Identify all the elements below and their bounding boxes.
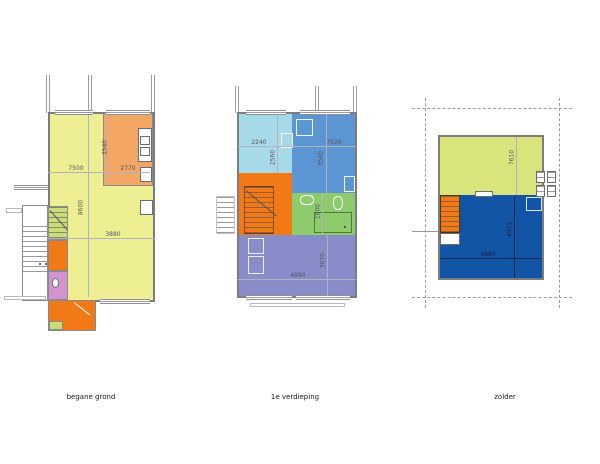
window xyxy=(246,295,292,300)
newel-post xyxy=(39,263,41,265)
stair-landing xyxy=(440,233,460,245)
roof-outline xyxy=(412,297,572,298)
dim-label: 2560 xyxy=(270,147,277,169)
dim-label: 2240 xyxy=(248,139,270,146)
wall-mullion xyxy=(315,86,319,113)
dim-line xyxy=(277,114,278,173)
neighbour-stair xyxy=(216,196,235,234)
wall-mullion xyxy=(88,75,92,113)
tick-line xyxy=(412,231,438,232)
wall-mullion xyxy=(235,86,239,113)
dim-line xyxy=(48,172,150,173)
dim-label: 3540 xyxy=(318,148,325,170)
kitchen-counter xyxy=(138,128,152,162)
dim-label: 4880 xyxy=(477,251,499,258)
dim-label: 7500 xyxy=(65,165,87,172)
dim-line xyxy=(88,115,89,297)
side-window xyxy=(14,185,48,190)
washbasin-icon xyxy=(300,195,314,205)
dim-line xyxy=(322,193,323,235)
staircase xyxy=(23,226,47,272)
dim-label: 4880 xyxy=(287,272,309,279)
dim-label: 1800 xyxy=(315,201,322,223)
floor-label-1e-verdieping: 1e verdieping xyxy=(260,393,330,401)
floor-label-zolder: zolder xyxy=(475,393,535,401)
window xyxy=(296,295,350,300)
roof-outline xyxy=(559,98,560,308)
closet xyxy=(296,119,313,136)
dim-line xyxy=(514,196,515,278)
attic-open-space xyxy=(440,137,542,195)
toilet-icon xyxy=(333,196,343,210)
duct-box xyxy=(547,185,556,197)
window xyxy=(246,110,286,115)
newel-post xyxy=(45,263,47,265)
wall-mullion xyxy=(151,75,155,113)
floor-label-begane-grond: begane grond xyxy=(56,393,126,401)
duct-box xyxy=(536,171,545,183)
roof-outline xyxy=(425,98,426,308)
kitchen-cabinet xyxy=(140,167,152,182)
radiator xyxy=(344,176,355,192)
dim-line xyxy=(516,137,517,195)
wall-mullion xyxy=(353,86,357,113)
duct-box xyxy=(547,171,556,183)
dim-label: 2770 xyxy=(117,165,139,172)
closet xyxy=(526,197,542,211)
kitchen-sink xyxy=(140,136,150,145)
window xyxy=(106,110,150,115)
dim-line xyxy=(238,279,356,280)
closet xyxy=(248,256,264,274)
dim-label: 8600 xyxy=(78,197,85,219)
closet xyxy=(248,238,264,254)
dim-label: 3880 xyxy=(102,231,124,238)
dim-label: 4951 xyxy=(507,219,514,241)
meter-cupboard xyxy=(49,321,63,330)
dim-line xyxy=(48,238,155,239)
roof-outline xyxy=(412,108,572,109)
porch-line xyxy=(6,208,22,213)
shower-drain xyxy=(344,226,346,228)
staircase xyxy=(440,195,460,233)
dim-label: 3540 xyxy=(102,137,109,159)
hall xyxy=(48,240,68,271)
window xyxy=(300,110,350,115)
wall-mullion xyxy=(46,75,50,113)
duct-box xyxy=(536,185,545,197)
floorplan-sheet: 7500 2770 3540 8600 3880 begane grond xyxy=(0,0,600,464)
dim-line xyxy=(238,146,356,147)
kitchen-stove xyxy=(140,147,150,156)
toilet-icon xyxy=(52,278,59,288)
dim-label: 7610 xyxy=(509,147,516,169)
dim-label: 7520 xyxy=(323,139,345,146)
porch-line xyxy=(4,296,46,300)
dim-label: 3070 xyxy=(320,250,327,272)
window xyxy=(100,299,150,304)
knee-wall-cabinet xyxy=(475,191,493,197)
dim-line xyxy=(326,114,327,193)
dim-line xyxy=(440,258,542,259)
cupboard xyxy=(140,200,153,215)
balcony-line xyxy=(250,303,345,307)
dim-line xyxy=(327,235,328,296)
